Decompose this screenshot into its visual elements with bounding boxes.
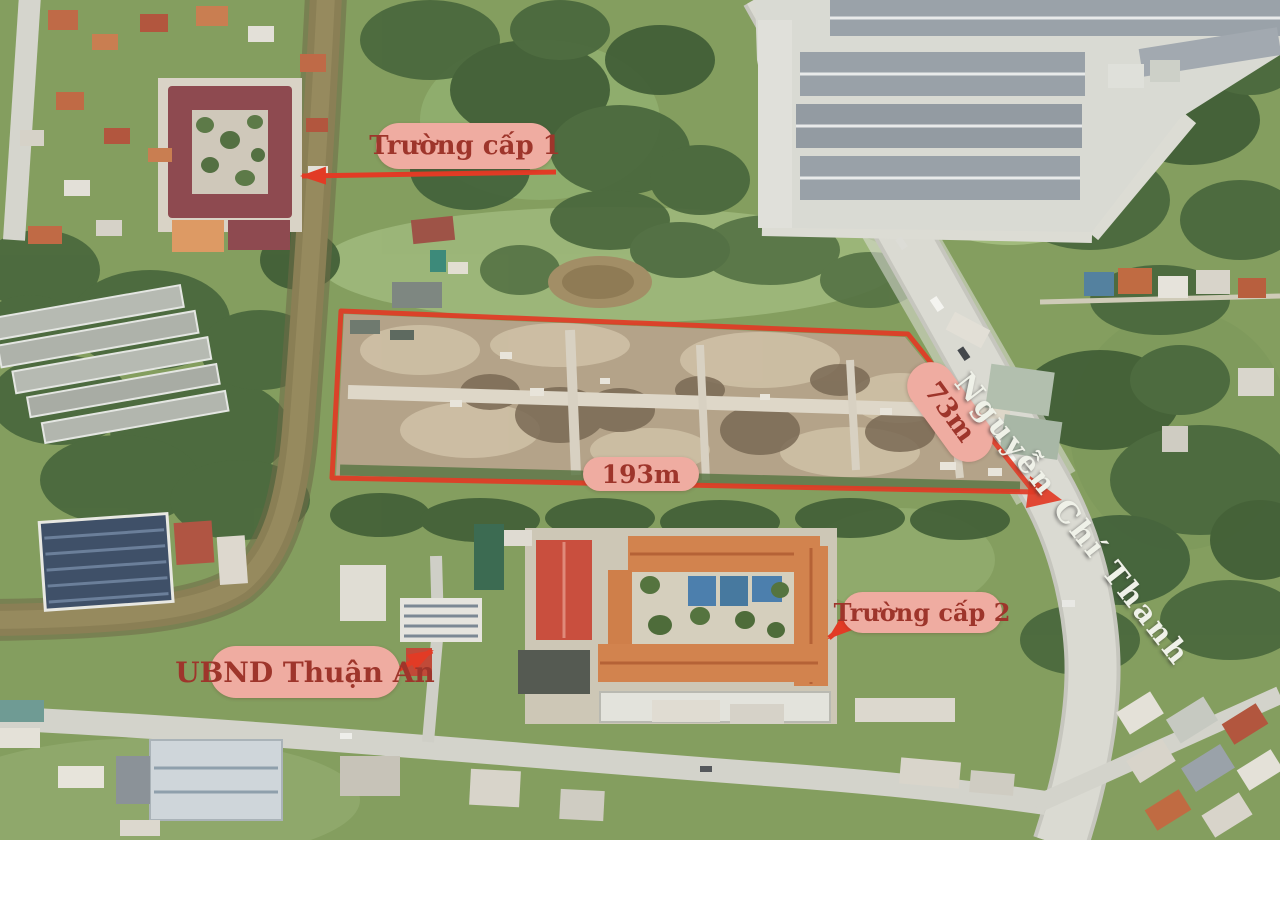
label-truong-cap-2: Trường cấp 2: [842, 592, 1002, 633]
photo-bottom-margin: [0, 840, 1280, 904]
school1-building: [158, 78, 302, 252]
label-truong-cap-1: Trường cấp 1: [376, 123, 554, 169]
satellite-map: [0, 0, 1280, 840]
screenshot-root: Trường cấp 1 193m 73m Trường cấp 2 UBND …: [0, 0, 1280, 904]
label-plot-width-193m: 193m: [583, 457, 699, 491]
satellite-photo: Trường cấp 1 193m 73m Trường cấp 2 UBND …: [0, 0, 1280, 840]
label-ubnd-thuan-an: UBND Thuận An: [210, 646, 400, 698]
